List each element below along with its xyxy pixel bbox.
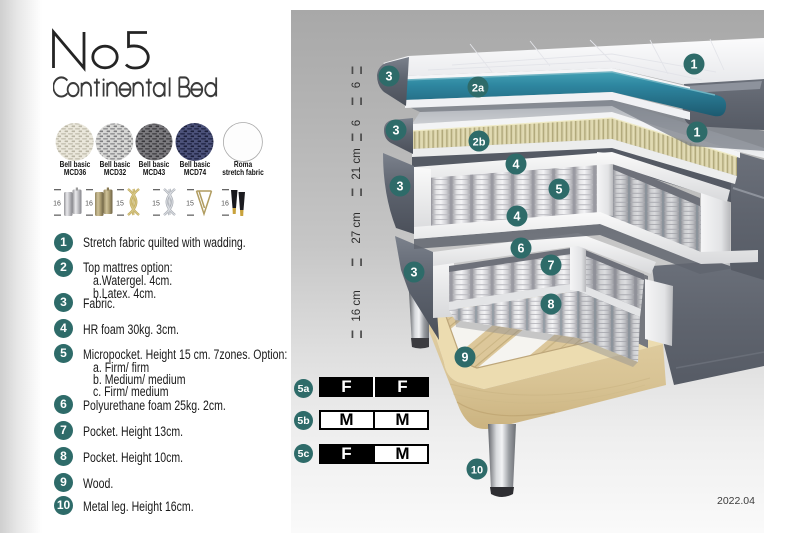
svg-text:16: 16 xyxy=(221,201,229,208)
svg-text:6: 6 xyxy=(518,241,525,255)
svg-text:1: 1 xyxy=(694,125,701,139)
svg-text:4: 4 xyxy=(514,209,521,223)
svg-text:9: 9 xyxy=(462,350,469,364)
svg-text:15: 15 xyxy=(186,201,194,208)
svg-text:16: 16 xyxy=(85,201,93,208)
svg-text:6: 6 xyxy=(351,120,363,126)
svg-text:1: 1 xyxy=(691,57,698,71)
svg-text:4: 4 xyxy=(513,157,520,171)
svg-text:15: 15 xyxy=(116,201,124,208)
svg-text:15: 15 xyxy=(152,201,160,208)
svg-text:5: 5 xyxy=(556,182,563,196)
svg-text:3: 3 xyxy=(386,69,393,83)
svg-text:6: 6 xyxy=(351,82,363,88)
svg-text:2b: 2b xyxy=(473,136,486,148)
svg-text:8: 8 xyxy=(548,297,555,311)
svg-text:3: 3 xyxy=(397,179,404,193)
svg-text:16 cm: 16 cm xyxy=(351,290,363,321)
svg-text:16: 16 xyxy=(53,201,61,208)
svg-text:10: 10 xyxy=(471,464,483,476)
svg-text:21 cm: 21 cm xyxy=(351,148,363,179)
svg-text:7: 7 xyxy=(548,258,555,272)
svg-text:3: 3 xyxy=(411,265,418,279)
svg-text:3: 3 xyxy=(393,123,400,137)
svg-text:27 cm: 27 cm xyxy=(351,212,363,243)
svg-text:2a: 2a xyxy=(472,82,485,94)
